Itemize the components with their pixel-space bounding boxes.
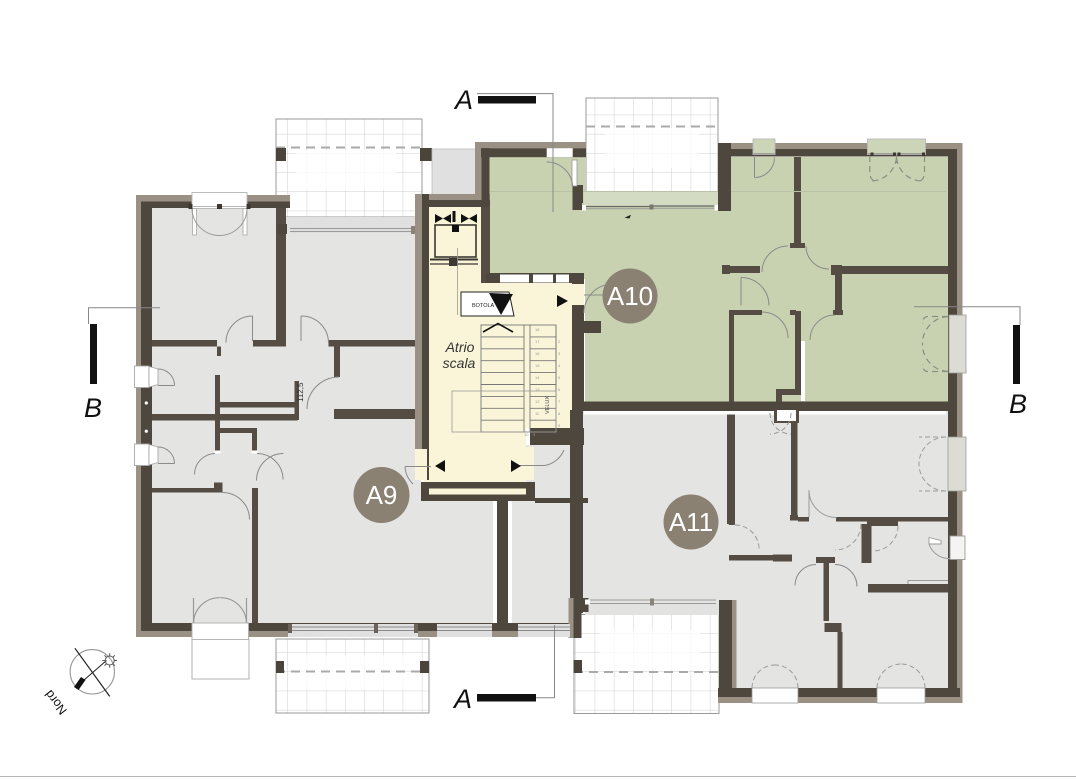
svg-text:18: 18 [535,327,540,332]
svg-text:A: A [452,684,472,714]
svg-text:B: B [1009,389,1027,419]
svg-text:10: 10 [524,432,529,437]
svg-text:16: 16 [535,351,540,356]
svg-text:17: 17 [535,339,540,344]
svg-text:12: 12 [535,399,540,404]
svg-text:B: B [84,393,102,423]
svg-text:A10: A10 [607,281,653,311]
svg-text:A: A [453,85,473,115]
svg-text:VELUX: VELUX [545,396,551,414]
svg-text:13: 13 [535,387,540,392]
svg-text:Atrio: Atrio [445,339,475,355]
svg-text:A11: A11 [669,507,713,537]
svg-text:112,5: 112,5 [296,382,305,402]
svg-text:15: 15 [535,363,540,368]
svg-text:scala: scala [443,355,476,371]
svg-text:BOTOLA: BOTOLA [472,303,495,309]
svg-text:A9: A9 [366,480,398,510]
svg-text:14: 14 [535,375,540,380]
